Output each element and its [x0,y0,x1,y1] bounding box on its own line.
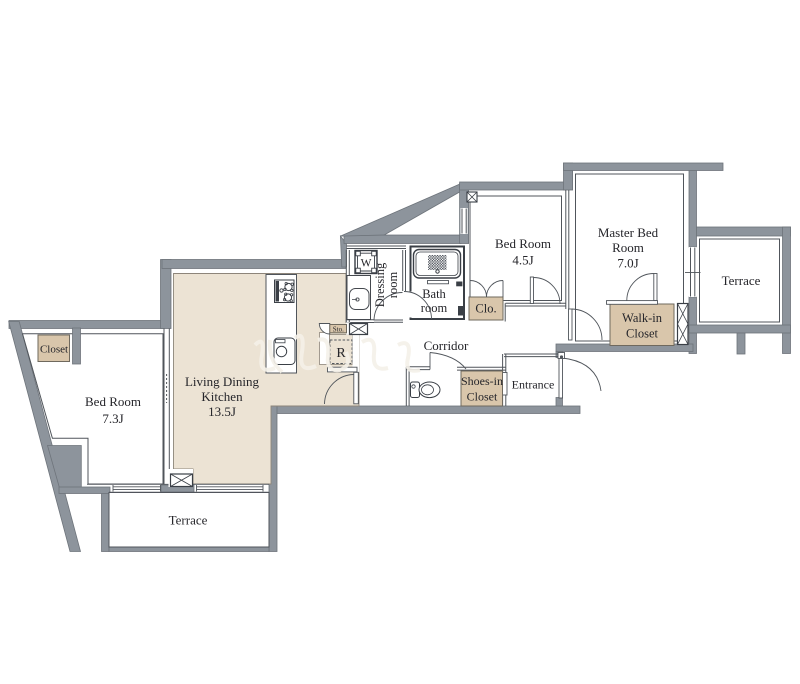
svg-text:Terrace: Terrace [169,513,208,528]
svg-text:Closet: Closet [467,390,498,404]
svg-text:7.3J: 7.3J [102,411,123,426]
svg-text:Bed Room: Bed Room [85,394,141,409]
svg-text:Bath: Bath [422,287,446,301]
svg-text:Shoes-in: Shoes-in [461,374,503,388]
svg-text:Sto.: Sto. [333,325,344,333]
svg-text:W: W [361,258,372,270]
svg-text:4.5J: 4.5J [512,253,533,268]
svg-text:Entrance: Entrance [512,378,555,392]
svg-text:Master Bed: Master Bed [598,225,659,240]
svg-text:Closet: Closet [626,327,658,341]
svg-text:Corridor: Corridor [424,338,469,353]
svg-text:Room: Room [612,240,644,255]
svg-text:Clo.: Clo. [475,302,496,316]
svg-text:7.0J: 7.0J [617,256,638,271]
svg-text:13.5J: 13.5J [208,404,236,419]
svg-text:Living Dining: Living Dining [185,374,260,389]
svg-text:room: room [421,301,448,315]
svg-text:Closet: Closet [40,344,68,356]
svg-text:Bed Room: Bed Room [495,236,551,251]
svg-text:Terrace: Terrace [722,273,761,288]
svg-text:Walk-in: Walk-in [622,311,663,325]
svg-text:Kitchen: Kitchen [201,389,243,404]
